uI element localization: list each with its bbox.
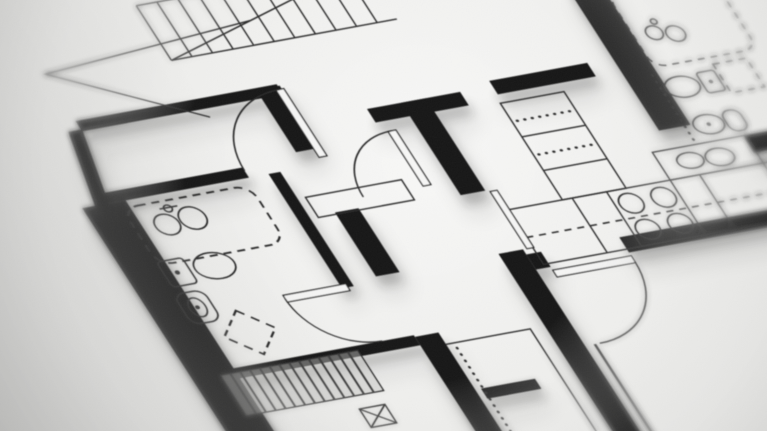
floor-plan-canvas: Black-and-white architectural floor plan… (0, 0, 767, 431)
film-grain (0, 0, 767, 431)
floor-plan-photo: Black-and-white architectural floor plan… (0, 0, 767, 431)
